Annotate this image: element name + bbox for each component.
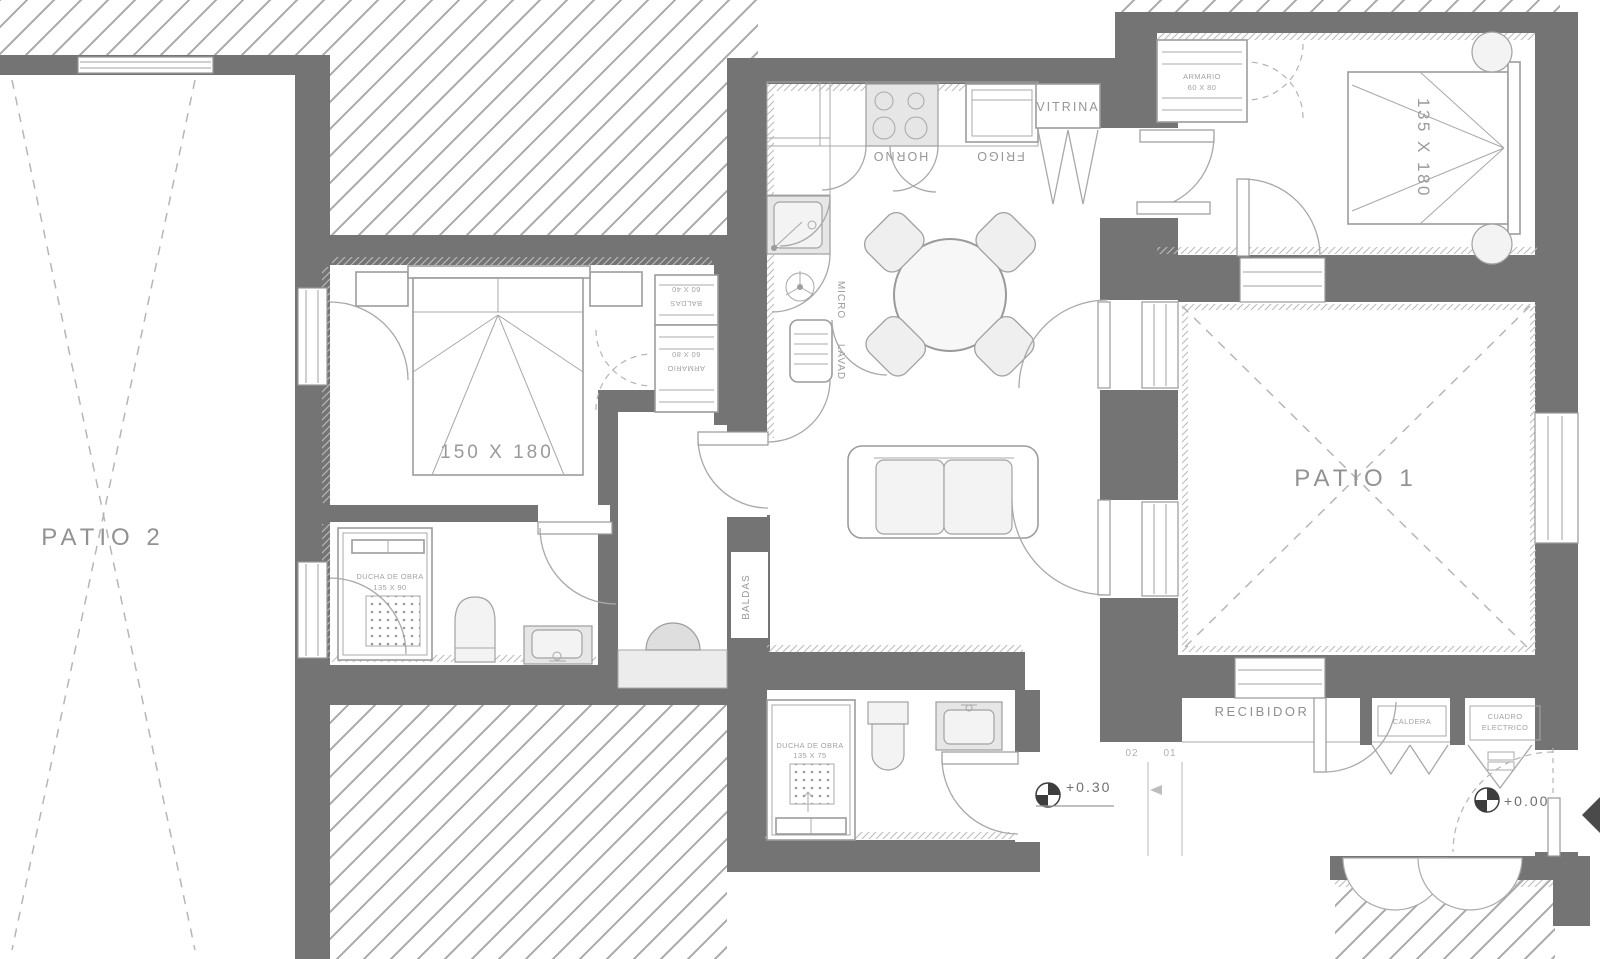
corridor-steps: 02 01 bbox=[1125, 748, 1182, 856]
hall2-door-leaf-1 bbox=[1140, 130, 1214, 142]
entry-door-leaf bbox=[1548, 798, 1560, 856]
step-02-label: 02 bbox=[1125, 748, 1138, 759]
window-bedroom2-patio bbox=[1240, 258, 1325, 302]
bed2-size-label: 135 X 180 bbox=[1414, 98, 1433, 198]
patio1-label: PATIO 1 bbox=[1294, 465, 1417, 492]
cuadro-electrico-closet: CUADRO ELECTRICO bbox=[1468, 706, 1540, 788]
sink2 bbox=[936, 702, 1002, 750]
window-bedroom1 bbox=[298, 288, 327, 385]
cuadro-label-1: CUADRO bbox=[1488, 712, 1523, 721]
bed1-headboard bbox=[408, 266, 590, 278]
toilet2 bbox=[868, 702, 908, 770]
hatch-top-left-strip bbox=[0, 0, 758, 58]
caldera-doors bbox=[1372, 745, 1448, 774]
closet-dims-label: 60 X 80 bbox=[672, 350, 701, 359]
toilet1 bbox=[455, 597, 495, 662]
wardrobe-bedroom2: ARMARIO 60 X 80 bbox=[1157, 40, 1303, 122]
hall-counter bbox=[618, 650, 727, 688]
kitchen-living: HORNO FRIGO VITRINA bbox=[767, 82, 1110, 595]
shower1-drain-grid bbox=[366, 596, 420, 646]
level-030-text: +0.30 bbox=[1066, 779, 1111, 795]
hatch-bottom-left bbox=[330, 705, 727, 959]
bedroom2-patio-door-leaf bbox=[1237, 179, 1249, 256]
boiler-symbol bbox=[786, 271, 814, 301]
bed1-size-label: 150 X 180 bbox=[440, 442, 554, 463]
patio1: PATIO 1 bbox=[1182, 306, 1530, 650]
armario2-label: ARMARIO bbox=[1183, 72, 1221, 81]
washing-machine bbox=[790, 320, 832, 382]
floor-plan-drawing: PATIO 2 PATIO 1 150 X 180 60 X 40 BALDAS… bbox=[0, 0, 1600, 959]
window-patio2-top bbox=[78, 57, 213, 73]
closet-name-label: ARMARIO bbox=[667, 364, 705, 373]
shelf-dims-label: 60 X 40 bbox=[672, 285, 701, 294]
armario2-door-arc-2 bbox=[1247, 62, 1303, 118]
sofa bbox=[848, 446, 1038, 538]
bathroom2-door-arc bbox=[942, 758, 1018, 834]
horno-label: HORNO bbox=[872, 149, 929, 163]
fridge bbox=[966, 84, 1038, 142]
window-frame-patio-north bbox=[1142, 302, 1178, 388]
shower1-label-2: 135 X 90 bbox=[373, 583, 406, 592]
bathroom1-door-leaf bbox=[538, 522, 612, 534]
level-marker-030: +0.30 bbox=[1036, 779, 1114, 807]
bedroom2-patio-door-arc bbox=[1243, 179, 1320, 256]
window-bathroom1 bbox=[298, 562, 327, 658]
opening-bathroom1-door bbox=[538, 505, 610, 522]
vitrina-doors bbox=[1038, 130, 1098, 204]
closet-door-arc-1 bbox=[596, 330, 652, 386]
entrance-arrow-icon bbox=[1582, 797, 1600, 833]
window-patio-recibidor bbox=[1235, 658, 1325, 698]
vitrina-cabinet: VITRINA bbox=[1036, 84, 1100, 204]
level-markers: +0.30 +0.00 02 01 bbox=[1036, 748, 1549, 856]
cuadro-label-2: ELECTRICO bbox=[1482, 723, 1529, 732]
bed2-headboard bbox=[1508, 62, 1520, 234]
patio-door-south-leaf bbox=[1098, 500, 1110, 595]
shower1-label-1: DUCHA DE OBRA bbox=[356, 572, 423, 581]
bedroom-main: 150 X 180 60 X 40 BALDAS 60 X 80 ARMARIO bbox=[330, 266, 718, 475]
bed2-pillow-bottom bbox=[1472, 224, 1512, 264]
bathroom-second: DUCHA DE OBRA 135 X 75 bbox=[767, 700, 1018, 840]
bathroom2-door-leaf bbox=[942, 752, 1018, 764]
bathroom-main: DUCHA DE OBRA 135 X 90 bbox=[330, 522, 616, 664]
hall-basin bbox=[646, 623, 700, 650]
dining-table bbox=[860, 208, 1041, 381]
hob bbox=[866, 84, 938, 146]
sink1 bbox=[524, 626, 592, 664]
patio-door-north-leaf bbox=[1098, 302, 1110, 388]
recibidor-door-leaf bbox=[1314, 698, 1326, 772]
step-01-label: 01 bbox=[1163, 748, 1176, 759]
window-shutter-arc-bedroom1 bbox=[330, 302, 408, 380]
patio2: PATIO 2 bbox=[12, 80, 195, 950]
level-000-text: +0.00 bbox=[1504, 793, 1549, 809]
nightstand-left bbox=[356, 272, 408, 306]
hall2-door-leaf-2 bbox=[1137, 202, 1210, 214]
micro-label: MICRO bbox=[835, 281, 846, 319]
hall-living-door-leaf bbox=[698, 432, 768, 445]
floor-plan-page: PATIO 2 PATIO 1 150 X 180 60 X 40 BALDAS… bbox=[0, 0, 1600, 959]
caldera-label: CALDERA bbox=[1393, 717, 1431, 726]
patio2-label: PATIO 2 bbox=[41, 524, 164, 551]
bedroom-second: ARMARIO 60 X 80 135 X 180 bbox=[1157, 32, 1520, 264]
shower2-drain-grid bbox=[790, 764, 834, 804]
baldas-niche-label: BALDAS bbox=[741, 574, 752, 619]
step-arrow bbox=[1150, 785, 1162, 795]
shelf-name-label: BALDAS bbox=[670, 299, 702, 308]
armario2-door-arc-1 bbox=[1247, 44, 1303, 100]
recibidor-label: RECIBIDOR bbox=[1215, 704, 1310, 719]
vitrina-label: VITRINA bbox=[1036, 100, 1099, 114]
shower2-label-2: 135 X 75 bbox=[793, 751, 826, 760]
window-frame-patio-south bbox=[1142, 502, 1178, 596]
hatch-top-right-strip bbox=[1115, 0, 1560, 14]
hatch-above-bedroom bbox=[330, 58, 727, 253]
window-patio1-east bbox=[1535, 413, 1578, 543]
armario2-dims: 60 X 80 bbox=[1188, 83, 1217, 92]
frigo-label: FRIGO bbox=[975, 149, 1025, 163]
bed2-pillow-top bbox=[1472, 32, 1512, 72]
shower2-label-1: DUCHA DE OBRA bbox=[776, 741, 843, 750]
nightstand-right bbox=[590, 272, 642, 306]
